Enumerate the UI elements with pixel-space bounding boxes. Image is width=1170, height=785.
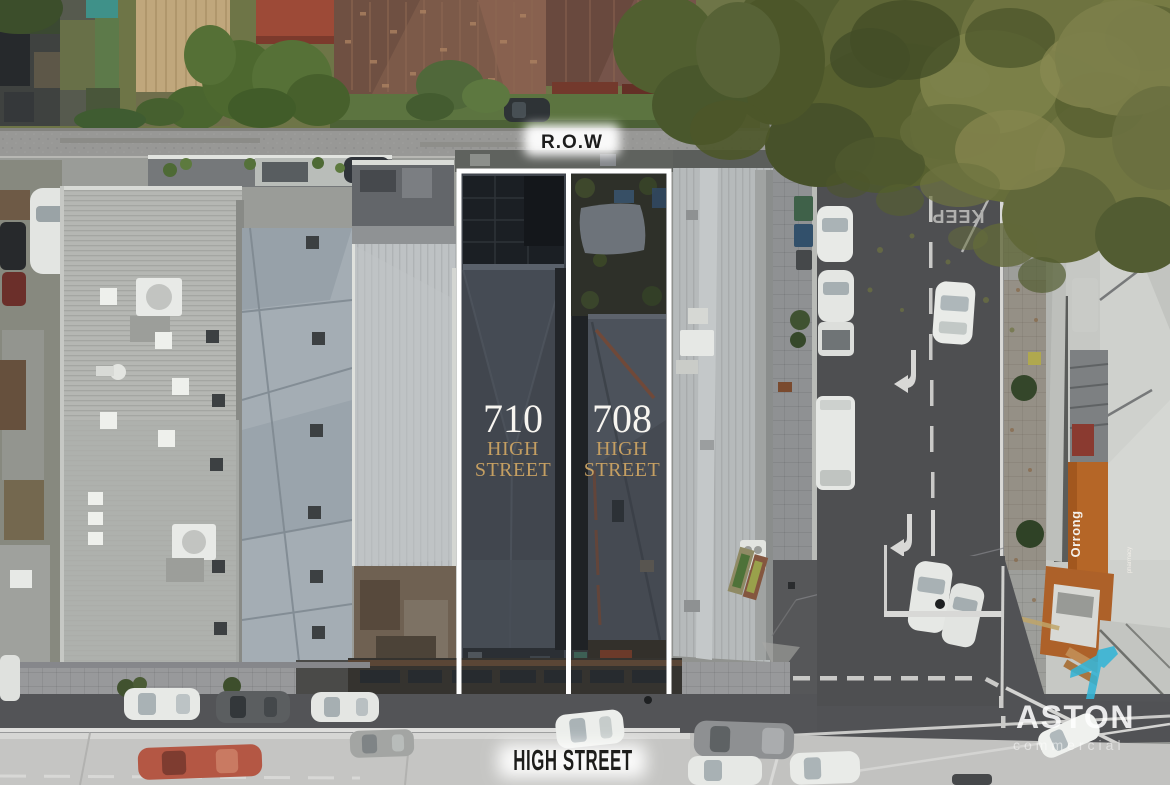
svg-text:ASTON: ASTON xyxy=(1016,699,1135,735)
svg-text:710: 710 xyxy=(483,396,543,441)
svg-text:HIGH: HIGH xyxy=(487,438,539,460)
svg-text:pharmacy: pharmacy xyxy=(1127,547,1133,573)
svg-text:R.O.W: R.O.W xyxy=(541,132,603,153)
svg-text:708: 708 xyxy=(592,396,652,441)
svg-text:HIGH: HIGH xyxy=(596,438,648,460)
svg-text:KEEP: KEEP xyxy=(931,206,984,226)
svg-text:HIGH STREET: HIGH STREET xyxy=(513,746,632,778)
svg-text:STREET: STREET xyxy=(475,459,551,481)
svg-text:Orrong: Orrong xyxy=(1068,510,1083,557)
svg-text:commercial: commercial xyxy=(1013,737,1125,753)
svg-text:STREET: STREET xyxy=(584,459,660,481)
